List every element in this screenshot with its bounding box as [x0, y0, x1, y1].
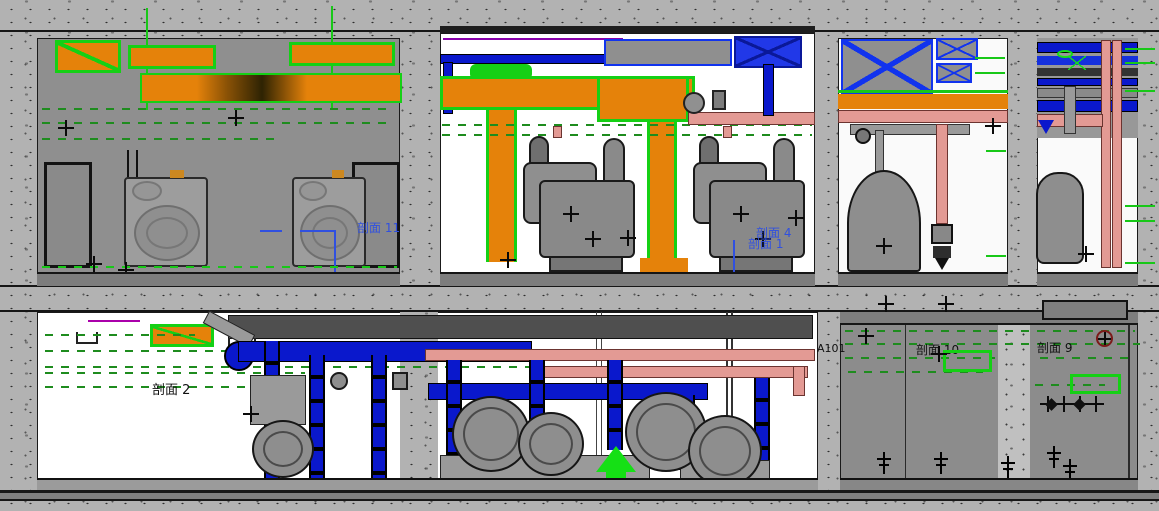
hidden-line [1040, 357, 1130, 359]
cross-marker [788, 210, 804, 226]
grid-ref-label[interactable]: A101 [817, 342, 846, 356]
cross-marker [938, 296, 954, 312]
fan-unit[interactable] [124, 177, 208, 267]
duct-selected[interactable] [289, 42, 395, 66]
floor-strip [440, 272, 815, 286]
pump-riser[interactable] [371, 355, 387, 487]
conduit-line [88, 320, 140, 322]
hidden-line [45, 334, 195, 336]
pipe-stub [553, 126, 562, 138]
valve-body[interactable] [931, 224, 953, 244]
fan-inlet [299, 181, 327, 201]
main-duct-selected[interactable] [140, 73, 402, 103]
cross-marker [228, 110, 244, 126]
duct-elbow-selected[interactable] [597, 76, 689, 122]
cross-marker [1078, 246, 1094, 262]
section-marker-9[interactable]: 剖面 9 [1037, 341, 1072, 355]
valve[interactable] [683, 92, 705, 114]
cross-marker [931, 346, 947, 362]
double-tick-marker [1046, 446, 1062, 468]
tick-line [975, 72, 1005, 74]
damper-symbol[interactable] [936, 63, 972, 83]
pump-volute[interactable] [452, 396, 530, 472]
fan-scroll [300, 205, 360, 261]
double-tick-marker [1000, 456, 1016, 478]
pipe-blue[interactable] [1037, 56, 1138, 65]
pipe-drop-pink[interactable] [793, 366, 805, 396]
pipe-blue[interactable] [1037, 100, 1138, 112]
floor-strip [37, 272, 400, 286]
beam-line [840, 323, 1138, 325]
hidden-line [42, 138, 282, 140]
chiller-unit[interactable] [693, 136, 807, 274]
valve[interactable] [330, 372, 348, 390]
section-marker-1[interactable]: 剖面 1 [748, 237, 783, 251]
duct-symbol[interactable] [604, 39, 732, 66]
hidden-line [845, 330, 1135, 332]
duct-selected[interactable] [128, 45, 216, 69]
section-marker-2[interactable]: 剖面 2 [152, 384, 190, 398]
chiller-unit[interactable] [523, 136, 637, 274]
pipe-riser-pink[interactable] [1101, 40, 1111, 268]
double-tick-marker [876, 452, 892, 474]
selected-edge [838, 90, 1008, 93]
section-marker-11[interactable]: 剖面 11 [357, 221, 400, 235]
pipe-blue[interactable] [1037, 78, 1138, 86]
duct-riser-selected[interactable] [647, 122, 677, 270]
condenser-pipe[interactable] [688, 112, 815, 125]
tick-line [1125, 220, 1155, 222]
double-tick-marker [933, 452, 949, 474]
pump-volute[interactable] [252, 420, 314, 478]
cross-marker [563, 206, 579, 222]
pump-riser[interactable] [607, 360, 623, 450]
valve[interactable] [855, 128, 871, 144]
cad-viewport[interactable]: 剖面 11 剖面 4 剖面 1 [0, 0, 1159, 511]
damper-symbol[interactable] [936, 38, 978, 60]
hanger-rod [136, 150, 138, 180]
pump-riser[interactable] [309, 355, 325, 487]
pipe-drop[interactable] [763, 64, 774, 116]
pipe-blue[interactable] [1037, 42, 1138, 53]
cross-marker [858, 328, 874, 344]
cross-marker [985, 118, 1001, 134]
cross-marker [500, 252, 516, 268]
condenser-pipe[interactable] [838, 110, 1008, 123]
grid-line [1128, 312, 1130, 490]
valve-body [933, 246, 951, 258]
chilled-water-pipe[interactable] [440, 54, 625, 64]
expansion-tank[interactable] [1036, 172, 1084, 264]
flow-arrow-icon [1038, 120, 1054, 134]
floor-strip [1037, 272, 1138, 286]
valve[interactable] [712, 90, 726, 110]
strainer-selected[interactable] [596, 446, 636, 472]
duct-dark [1037, 68, 1138, 76]
circle-cross-marker [1096, 330, 1113, 347]
ahu-symbol[interactable] [841, 39, 933, 95]
tick-line [986, 255, 1006, 257]
pipe-drop-gray [1064, 86, 1076, 134]
cross-marker [1088, 396, 1104, 412]
cable-tray[interactable] [228, 315, 813, 339]
tick-line [1125, 90, 1155, 92]
header-pink[interactable] [540, 366, 808, 378]
tick-line [1125, 262, 1155, 264]
beam-box [1042, 300, 1128, 320]
cross-marker [58, 120, 74, 136]
tick-line [986, 150, 1006, 152]
tick-line [1125, 48, 1155, 50]
annotation-leader [260, 230, 282, 232]
conduit-line [443, 38, 623, 40]
hidden-line [42, 108, 394, 110]
section-box-selected[interactable] [1070, 374, 1121, 394]
electrical-cabinet[interactable] [44, 162, 92, 268]
cross-marker [243, 406, 259, 422]
valve[interactable] [392, 372, 408, 390]
pipe-riser-pink[interactable] [936, 124, 948, 224]
fan-unit[interactable] [292, 177, 366, 267]
ceiling-beam [440, 26, 815, 33]
hidden-line [845, 343, 1140, 345]
duct-foot [640, 258, 688, 272]
duct-riser-selected[interactable] [486, 110, 517, 262]
slab-line [0, 499, 1159, 501]
duct-gray [1037, 88, 1138, 98]
cross-marker [1056, 396, 1072, 412]
hidden-line [45, 386, 250, 388]
fan-inlet [132, 181, 162, 201]
cross-marker [733, 206, 749, 222]
tick-line [1125, 62, 1155, 64]
buffer-tank[interactable] [847, 170, 921, 272]
cross-marker [620, 230, 636, 246]
cross-marker [585, 231, 601, 247]
annotation-leader [300, 230, 336, 232]
down-arrow-icon [935, 258, 949, 270]
pipe-riser-pink[interactable] [1112, 40, 1122, 268]
pump-volute[interactable] [518, 412, 584, 476]
cross-marker [876, 238, 892, 254]
hanger-rod [127, 150, 129, 180]
tick-line [975, 57, 1005, 59]
pipe-stub [723, 126, 732, 138]
floor-strip [838, 272, 1008, 286]
cross-marker [878, 296, 894, 312]
fan-motor-cap [332, 170, 344, 178]
fan-scroll [134, 205, 200, 261]
hidden-line [45, 350, 230, 352]
duct[interactable] [838, 94, 1008, 109]
cross-marker [86, 256, 102, 272]
grid-line [905, 312, 906, 490]
hidden-line [42, 122, 394, 124]
tag-cross-green [1068, 56, 1086, 70]
pump-volute[interactable] [688, 415, 762, 487]
duct-symbol-selected[interactable] [55, 40, 121, 73]
tick-line [1125, 205, 1155, 207]
section-box-selected[interactable] [943, 350, 992, 372]
fan-motor-cap [170, 170, 184, 178]
